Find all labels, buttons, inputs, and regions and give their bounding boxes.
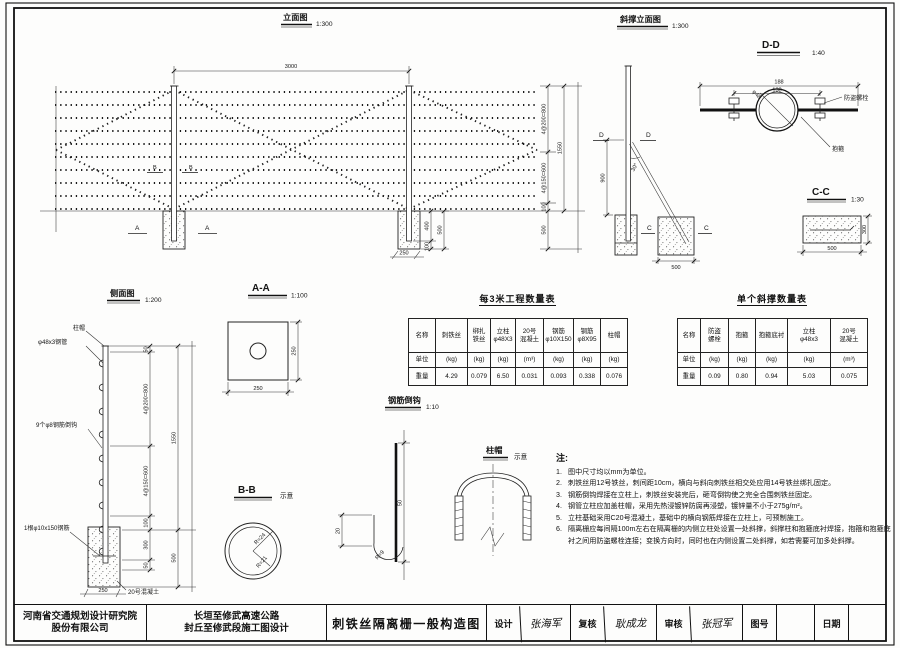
side-scale: 1:200 — [145, 297, 162, 304]
t2-v2: 0.80 — [729, 368, 756, 386]
t2-v0: 重量 — [678, 368, 701, 386]
cap-note: 示意 — [514, 452, 528, 461]
bb-detail: B-B 示意 R=24 R=21 — [225, 485, 294, 579]
table1-title: 每3米工程数量表 — [408, 292, 627, 305]
t1-h4: 20号 混凝土 — [516, 319, 544, 353]
bb-title: B-B — [238, 485, 256, 496]
section-d-right: D — [646, 132, 651, 139]
dd-title: D-D — [762, 40, 780, 51]
t2-u2: (kg) — [729, 353, 756, 368]
figure-number-value — [776, 605, 814, 641]
t2-h1: 防盗 螺栓 — [701, 319, 729, 353]
section-a-left: A — [135, 225, 140, 232]
dd-detail: D-D 1:40 φ48 188 138 防盗螺栓 抱箍 — [698, 40, 869, 153]
dim-100: 100 — [542, 202, 548, 211]
elevation-view: 立面图 1:300 — [40, 12, 585, 259]
dim-found-500: 500 — [438, 225, 444, 234]
table-row: 单位 (kg) (kg) (kg) (m³) (kg) (kg) (kg) — [409, 353, 628, 368]
dd-scale: 1:40 — [812, 50, 825, 57]
t2-v4: 5.03 — [788, 368, 831, 386]
aa-title: A-A — [252, 283, 270, 294]
note-item: 5.立柱基础采用C20号混凝土，基础中的横向钢筋焊接在立柱上，可预制施工。 — [556, 513, 892, 524]
cap-leader-label: 柱帽 — [73, 324, 85, 332]
t1-h1: 刺铁丝 — [436, 319, 468, 353]
section-c-left: C — [647, 225, 652, 232]
dim-found-250: 250 — [399, 251, 408, 257]
anti-theft-bolt-label: 防盗螺栓 — [844, 94, 868, 102]
t2-h3: 抱箍底衬 — [756, 319, 788, 353]
dim-500: 500 — [542, 225, 548, 234]
table-row: 名称 防盗 螺栓 抱箍 抱箍底衬 立柱 φ48x3 20号 混凝土 — [678, 319, 868, 353]
side-dim-300: 300 — [144, 540, 150, 549]
aa-scale: 1:100 — [291, 293, 308, 300]
side-dim-4x200: 4@200=800 — [144, 384, 150, 415]
note-item: 4.钢管立柱应加盖柱帽，采用先热浸镀锌防腐再浸塑，镀锌量不小于275g/m²。 — [556, 501, 892, 512]
t2-v3: 0.94 — [756, 368, 788, 386]
dim-brace-500: 500 — [671, 265, 680, 271]
t2-u1: (kg) — [701, 353, 729, 368]
title-block: 河南省交通规划设计研究院 股份有限公司 长垣至修武高速公路 封丘至修武段施工图设… — [14, 604, 886, 641]
bb-note: 示意 — [280, 491, 294, 500]
bb-r24: R=24 — [253, 532, 267, 546]
t1-u3: (kg) — [491, 353, 516, 368]
date-label: 日期 — [814, 605, 848, 641]
table-row: 名称 刺铁丝 绑扎 铁丝 立柱 φ48X3 20号 混凝土 钢筋 φ10X150… — [409, 319, 628, 353]
cap-title: 柱帽 — [486, 445, 502, 455]
t1-v7: 0.076 — [601, 368, 628, 386]
quantity-table-per-3m: 名称 刺铁丝 绑扎 铁丝 立柱 φ48X3 20号 混凝土 钢筋 φ10X150… — [408, 318, 628, 386]
design-label: 设计 — [486, 605, 520, 641]
aa-detail: A-A 1:100 250 250 — [222, 283, 308, 396]
table2-title: 单个斜撑数量表 — [677, 292, 867, 305]
t2-h2: 抱箍 — [729, 319, 756, 353]
dim-cc-300: 300 — [862, 225, 868, 234]
t1-u5: (kg) — [544, 353, 574, 368]
fence-posts — [163, 86, 420, 249]
hook-detail: 钢筋倒钩 1:10 50 20 R=9 — [336, 395, 440, 580]
drawing-title: 刺铁丝隔离栅一般构造图 — [326, 605, 486, 641]
section-a-right: A — [205, 225, 210, 232]
side-title: 侧面图 — [110, 288, 135, 298]
side-dim-100: 100 — [144, 518, 150, 527]
dim-embed-400: 400 — [425, 221, 431, 230]
dim-1550: 1550 — [558, 142, 564, 154]
side-dim-50-top: 50 — [144, 346, 150, 352]
hook-title: 钢筋倒钩 — [388, 395, 421, 405]
cc-detail: C-C 1:30 500 300 — [797, 187, 872, 256]
aa-dim-250-bottom: 250 — [253, 386, 262, 392]
t1-h3: 立柱 φ48X3 — [491, 319, 516, 353]
review-signature: 张冠军 — [689, 604, 743, 643]
section-c-right: C — [704, 225, 709, 232]
check-signature: 耿成龙 — [603, 604, 657, 643]
note-item: 3.钢筋倒钩焊接在立柱上，刺铁丝安装完后，砸弯倒钩使之完全合围刺铁丝固定。 — [556, 490, 892, 501]
dim-138: 138 — [772, 88, 781, 94]
t2-h4: 立柱 φ48x3 — [788, 319, 831, 353]
t2-u5: (m³) — [831, 353, 868, 368]
t2-u4: (kg) — [788, 353, 831, 368]
rebar-hooks — [99, 360, 103, 555]
t1-v4: 0.031 — [516, 368, 544, 386]
barbed-wires — [40, 86, 585, 232]
cc-scale: 1:30 — [851, 197, 864, 204]
t2-h5: 20号 混凝土 — [831, 319, 868, 353]
t2-h0: 名称 — [678, 319, 701, 353]
hook-dim-20: 20 — [336, 528, 342, 534]
t1-h5: 钢筋 φ10X150 — [544, 319, 574, 353]
date-value — [848, 605, 886, 641]
figure-number-label: 图号 — [742, 605, 776, 641]
side-dim-500: 500 — [172, 553, 178, 562]
section-b-right: B — [189, 165, 193, 171]
rebar-leader-label: 1根φ10x150钢筋 — [24, 524, 70, 532]
t1-h7: 柱帽 — [601, 319, 628, 353]
cc-title: C-C — [812, 187, 830, 198]
t1-h6: 钢筋 φ8X95 — [574, 319, 601, 353]
t2-v1: 0.09 — [701, 368, 729, 386]
t1-u2: (kg) — [468, 353, 491, 368]
elevation-title: 立面图 — [283, 12, 308, 22]
pipe-leader-label: φ48x3钢管 — [38, 338, 67, 346]
t1-v3: 6.50 — [491, 368, 516, 386]
t2-u0: 单位 — [678, 353, 701, 368]
company-name: 河南省交通规划设计研究院 股份有限公司 — [14, 605, 146, 641]
t1-h2: 绑扎 铁丝 — [468, 319, 491, 353]
note-item: 2.刺铁丝用12号铁丝，刺间距10cm，横向与斜向刺铁丝相交处应用14号铁丝绑扎… — [556, 478, 892, 489]
table-row: 重量 4.29 0.079 6.50 0.031 0.093 0.338 0.0… — [409, 368, 628, 386]
brace-scale: 1:300 — [672, 23, 689, 30]
t1-h0: 名称 — [409, 319, 436, 353]
note-item: 1.图中尺寸均以mm为单位。 — [556, 467, 892, 478]
span-dimension: 3000 — [172, 64, 411, 84]
t1-v6: 0.338 — [574, 368, 601, 386]
t1-v2: 0.079 — [468, 368, 491, 386]
side-dim-4x150: 4@150=600 — [144, 466, 150, 497]
dim-cc-500: 500 — [827, 246, 836, 252]
t2-u3: (kg) — [756, 353, 788, 368]
hook-scale: 1:10 — [426, 404, 439, 411]
dim-188: 188 — [774, 80, 783, 86]
brace-angle: 30° — [630, 162, 639, 172]
elevation-height-dims: 4@200=800 4@150=600 100 500 1550 — [540, 82, 582, 253]
t1-v5: 0.093 — [544, 368, 574, 386]
notes-block: 注: 1.图中尺寸均以mm为单位。 2.刺铁丝用12号铁丝，刺间距10cm，横向… — [556, 451, 892, 547]
t1-v1: 4.29 — [436, 368, 468, 386]
note-item: 6.隔离栅应每间隔100m左右在隔离栅的内侧立柱处设置一处斜撑，斜撑柱和抱箍底衬… — [556, 524, 892, 547]
side-view: 侧面图 1:200 柱帽 φ48x3钢管 9个φ8钢筋倒钩 1根φ10x150钢… — [24, 288, 196, 597]
brace-title: 斜撑立面图 — [619, 14, 661, 24]
table-row: 重量 0.09 0.80 0.94 5.03 0.075 — [678, 368, 868, 386]
hooks-leader-label: 9个φ8钢筋倒钩 — [36, 421, 77, 429]
concrete-leader-label: 20号混凝土 — [128, 588, 159, 596]
drawing-sheet: 立面图 1:300 — [0, 0, 900, 648]
dim-3000: 3000 — [285, 64, 297, 70]
side-dim-50-bottom: 50 — [144, 562, 150, 568]
section-b-left: B — [153, 165, 157, 171]
notes-title: 注: — [556, 451, 892, 464]
dim-900: 900 — [601, 173, 607, 182]
t1-u7: (kg) — [601, 353, 628, 368]
side-dim-250: 250 — [98, 588, 107, 594]
single-brace-quantity-table: 名称 防盗 螺栓 抱箍 抱箍底衬 立柱 φ48x3 20号 混凝土 单位 (kg… — [677, 318, 868, 386]
section-d-left: D — [599, 132, 604, 139]
bb-r21: R=21 — [256, 555, 269, 569]
hook-r9: R=9 — [375, 549, 386, 561]
elevation-scale: 1:300 — [316, 21, 333, 28]
clamp-label: 抱箍 — [832, 145, 844, 153]
design-signature: 张海军 — [519, 604, 571, 643]
side-dim-1550: 1550 — [172, 432, 178, 444]
t1-u0: 单位 — [409, 353, 436, 368]
table-row: 单位 (kg) (kg) (kg) (kg) (m³) — [678, 353, 868, 368]
project-name: 长垣至修武高速公路 封丘至修武段施工图设计 — [146, 605, 326, 641]
aa-dim-250-right: 250 — [292, 346, 298, 355]
t1-u4: (m³) — [516, 353, 544, 368]
hook-dim-50: 50 — [398, 500, 404, 506]
brace-elevation-view: 斜撑立面图 1:300 30° D D C C 900 500 — [593, 14, 712, 271]
t1-u1: (kg) — [436, 353, 468, 368]
t1-u6: (kg) — [574, 353, 601, 368]
review-label: 审核 — [656, 605, 690, 641]
t1-v0: 重量 — [409, 368, 436, 386]
cap-detail: 柱帽 示意 — [455, 445, 531, 556]
dim-under-100: 100 — [425, 242, 431, 251]
dim-4x150: 4@150=600 — [542, 163, 548, 194]
t2-v5: 0.075 — [831, 368, 868, 386]
dim-4x200: 4@200=800 — [542, 104, 548, 135]
check-label: 复核 — [570, 605, 604, 641]
